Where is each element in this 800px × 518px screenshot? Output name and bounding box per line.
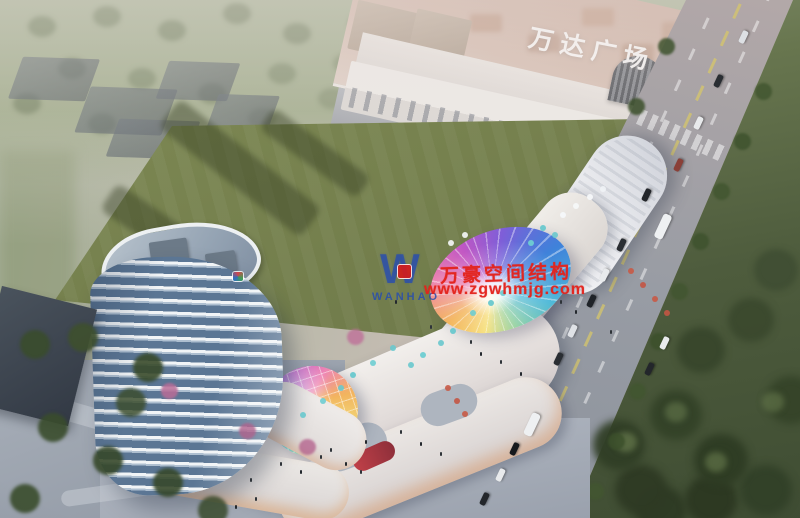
- watermark-website: www.zgwhmjg.com: [424, 281, 586, 299]
- aerial-rendering-scene: 万达广场: [0, 0, 800, 518]
- pedestrian-dots: [0, 0, 2, 4]
- watermark-logo-seal: [397, 264, 412, 279]
- tower-brand-logo: [233, 272, 243, 281]
- distant-building: [8, 57, 100, 102]
